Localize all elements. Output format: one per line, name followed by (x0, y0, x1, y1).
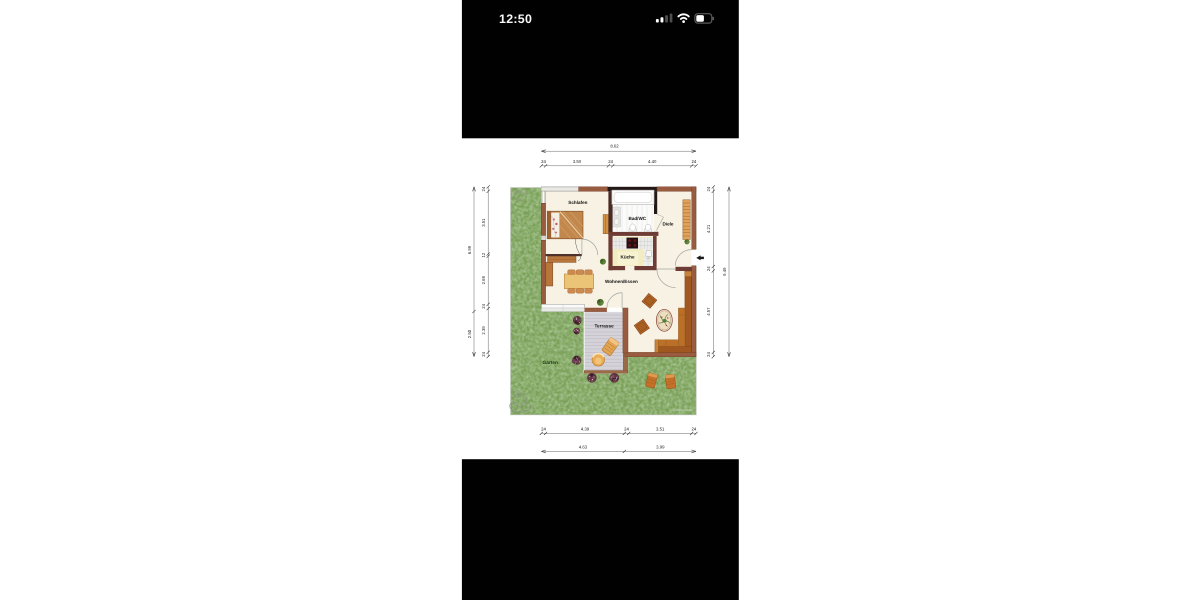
svg-text:24: 24 (608, 159, 613, 164)
svg-text:4.40: 4.40 (648, 159, 657, 164)
svg-text:24: 24 (481, 186, 486, 191)
svg-text:12:50: 12:50 (499, 12, 532, 26)
svg-text:24: 24 (624, 426, 629, 431)
svg-text:24: 24 (481, 351, 486, 356)
svg-text:24: 24 (541, 159, 546, 164)
svg-text:2.50: 2.50 (467, 329, 472, 338)
svg-text:Küche: Küche (621, 254, 635, 259)
svg-text:9.49: 9.49 (722, 267, 727, 276)
svg-text:3.51: 3.51 (656, 426, 665, 431)
svg-text:24: 24 (706, 266, 711, 271)
svg-text:24: 24 (692, 159, 697, 164)
svg-text:3.99: 3.99 (656, 444, 665, 449)
svg-text:12: 12 (481, 252, 486, 257)
svg-text:Terrasse: Terrasse (595, 324, 615, 329)
svg-text:Bad/WC: Bad/WC (629, 216, 647, 221)
svg-text:Wohnen/Essen: Wohnen/Essen (605, 279, 638, 284)
svg-text:Schlafen: Schlafen (568, 200, 587, 205)
svg-text:24: 24 (706, 186, 711, 191)
svg-text:Diele: Diele (663, 221, 674, 226)
svg-text:4.39: 4.39 (581, 426, 590, 431)
svg-text:24: 24 (541, 426, 546, 431)
svg-text:Garten: Garten (543, 360, 559, 366)
svg-text:3.50: 3.50 (573, 159, 582, 164)
svg-text:8.62: 8.62 (610, 144, 619, 149)
svg-text:24: 24 (692, 426, 697, 431)
svg-text:24: 24 (706, 352, 711, 357)
svg-text:4.21: 4.21 (706, 224, 711, 233)
svg-text:24: 24 (481, 303, 486, 308)
svg-text:2.69: 2.69 (481, 275, 486, 284)
svg-text:floorplanner: floorplanner (676, 408, 694, 412)
svg-text:3.51: 3.51 (481, 218, 486, 227)
svg-text:4.57: 4.57 (706, 307, 711, 316)
svg-text:4.63: 4.63 (579, 444, 588, 449)
svg-text:6.99: 6.99 (467, 245, 472, 254)
svg-text:2.39: 2.39 (481, 326, 486, 335)
